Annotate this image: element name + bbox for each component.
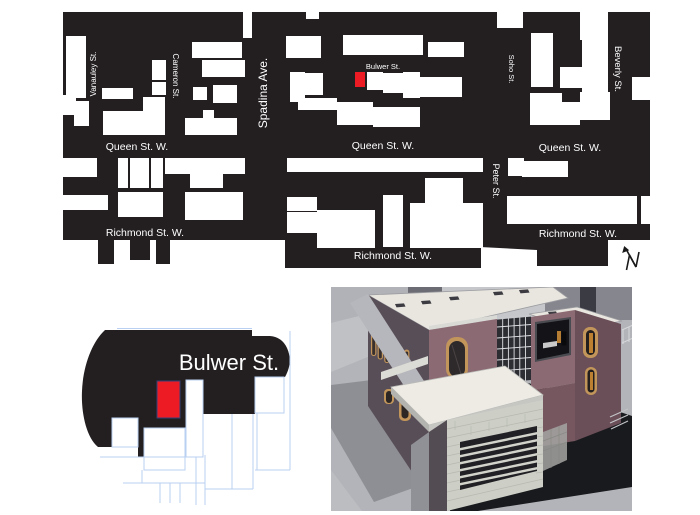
street-label: Vanauley St.: [89, 52, 98, 97]
detail-street-label: Bulwer St.: [179, 350, 279, 375]
building: [103, 111, 143, 135]
building: [143, 97, 165, 135]
street-label: Queen St. W.: [539, 142, 601, 154]
building: [102, 88, 133, 99]
building: [522, 161, 568, 177]
tower-big-window: [535, 317, 571, 362]
site-marker: [355, 72, 365, 87]
street-label: Cameron St.: [171, 54, 180, 99]
building: [420, 77, 462, 97]
building: [66, 36, 86, 98]
street-label: Richmond St. W.: [354, 250, 432, 262]
building: [531, 33, 553, 87]
building: [373, 107, 420, 127]
building: [317, 210, 375, 248]
street-label: Peter St.: [491, 163, 501, 198]
building: [112, 418, 138, 447]
street-label: Spadina Ave.: [256, 58, 270, 129]
building: [290, 72, 305, 102]
street-label: Bulwer St.: [366, 62, 400, 71]
building: [403, 72, 420, 98]
street-label: Richmond St. W.: [539, 228, 617, 240]
building: [130, 158, 149, 188]
north-arrow: [622, 246, 639, 270]
building: [343, 35, 423, 55]
site-plan-board: Queen St. W. Queen St. W. Queen St. W. R…: [0, 0, 700, 515]
building: [118, 158, 128, 188]
building: [144, 428, 185, 470]
building: [298, 98, 337, 110]
building: [287, 158, 483, 172]
building: [287, 212, 317, 233]
building: [305, 73, 323, 95]
render-3d: [331, 287, 632, 511]
street-label: Queen St. W.: [106, 141, 168, 153]
building: [508, 158, 524, 176]
site-marker: [157, 381, 180, 418]
building: [152, 82, 166, 95]
building: [63, 195, 108, 210]
street-label: Soho St.: [507, 55, 516, 84]
building: [192, 42, 242, 58]
detail-map: Bulwer St.: [75, 313, 307, 515]
building: [213, 85, 237, 103]
building: [202, 60, 245, 77]
street-label: Queen St. W.: [352, 140, 414, 152]
side-brick-strip: [429, 420, 447, 511]
site-map: Queen St. W. Queen St. W. Queen St. W. R…: [60, 8, 654, 274]
building: [185, 118, 237, 135]
building: [190, 174, 223, 188]
building: [193, 87, 207, 100]
building: [383, 195, 403, 247]
building: [507, 196, 637, 224]
building: [243, 12, 252, 38]
building: [74, 101, 89, 126]
building: [580, 12, 608, 40]
building: [632, 77, 650, 100]
side-wall-strip: [411, 432, 429, 511]
building: [641, 196, 650, 224]
building: [185, 192, 243, 220]
building: [410, 203, 483, 248]
building: [63, 158, 97, 177]
tower: [529, 307, 632, 448]
building: [428, 42, 464, 57]
building: [287, 197, 317, 211]
building: [425, 178, 463, 203]
building: [530, 93, 562, 125]
building: [151, 158, 163, 188]
building: [186, 380, 203, 457]
building: [118, 192, 163, 217]
building: [383, 73, 403, 93]
building: [165, 158, 245, 174]
street-label: Beverly St.: [612, 46, 623, 92]
building: [580, 92, 610, 120]
street-label: Richmond St. W.: [106, 227, 184, 239]
building: [562, 102, 580, 125]
building: [255, 377, 284, 413]
building: [367, 72, 383, 90]
building: [306, 10, 319, 19]
building: [337, 102, 373, 125]
building: [286, 36, 321, 58]
building: [497, 12, 523, 28]
building: [152, 60, 166, 80]
